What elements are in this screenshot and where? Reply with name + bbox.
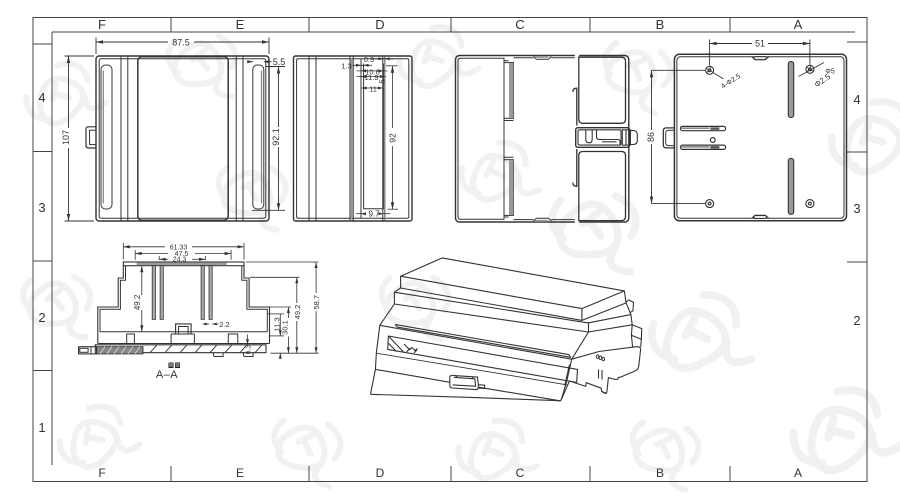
svg-text:B: B [656, 17, 665, 32]
svg-text:11: 11 [369, 85, 377, 94]
svg-text:D: D [375, 17, 384, 32]
svg-text:4: 4 [38, 90, 45, 105]
svg-text:51: 51 [755, 39, 765, 49]
svg-text:E: E [236, 17, 245, 32]
svg-text:F: F [98, 17, 106, 32]
svg-text:86: 86 [646, 132, 656, 142]
svg-text:92: 92 [388, 133, 398, 143]
svg-text:0.9: 0.9 [364, 55, 374, 64]
svg-text:A: A [794, 17, 803, 32]
svg-text:E: E [236, 466, 244, 480]
svg-text:F: F [98, 466, 105, 480]
svg-text:87.5: 87.5 [172, 37, 190, 47]
svg-text:30.1: 30.1 [281, 320, 290, 335]
svg-text:2.2: 2.2 [219, 320, 229, 329]
svg-text:92.1: 92.1 [271, 128, 281, 146]
svg-text:11.9: 11.9 [364, 73, 378, 82]
svg-text:24.3: 24.3 [173, 257, 187, 264]
svg-text:49.2: 49.2 [293, 305, 302, 320]
svg-text:107: 107 [61, 130, 71, 145]
svg-text:2: 2 [853, 313, 860, 328]
svg-text:D: D [376, 466, 385, 480]
svg-text:A–A: A–A [156, 369, 178, 381]
svg-text:5: 5 [378, 79, 387, 83]
svg-text:3: 3 [38, 200, 45, 215]
svg-text:1: 1 [38, 420, 45, 435]
svg-text:9.7: 9.7 [368, 210, 380, 219]
svg-text:C: C [515, 17, 524, 32]
svg-text:5.5: 5.5 [273, 57, 286, 67]
svg-text:2: 2 [38, 310, 45, 325]
svg-text:A: A [794, 466, 802, 480]
svg-text:6.3: 6.3 [246, 345, 253, 355]
svg-text:4: 4 [853, 92, 860, 107]
svg-text:3: 3 [853, 201, 860, 216]
svg-text:C: C [516, 466, 525, 480]
svg-text:49.2: 49.2 [133, 294, 142, 310]
svg-text:B: B [656, 466, 664, 480]
svg-text:1.3: 1.3 [341, 62, 351, 71]
svg-text:58.7: 58.7 [312, 295, 321, 310]
